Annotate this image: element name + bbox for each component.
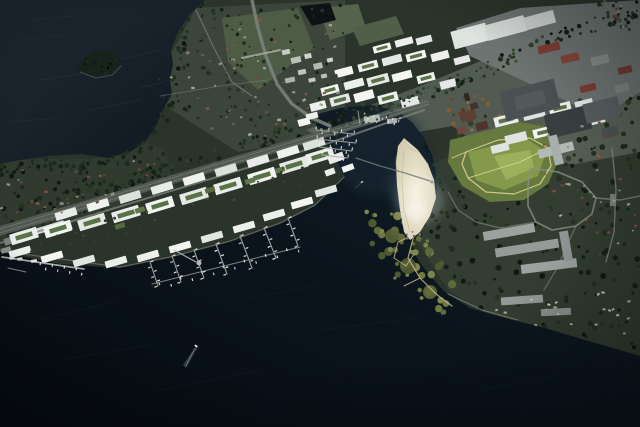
aerial-masterplan-render: Aerial rendering of a coastal waterfront… xyxy=(0,0,640,427)
scene-layers xyxy=(0,0,640,427)
aerial-render-canvas xyxy=(0,0,640,427)
vignette xyxy=(0,0,640,427)
